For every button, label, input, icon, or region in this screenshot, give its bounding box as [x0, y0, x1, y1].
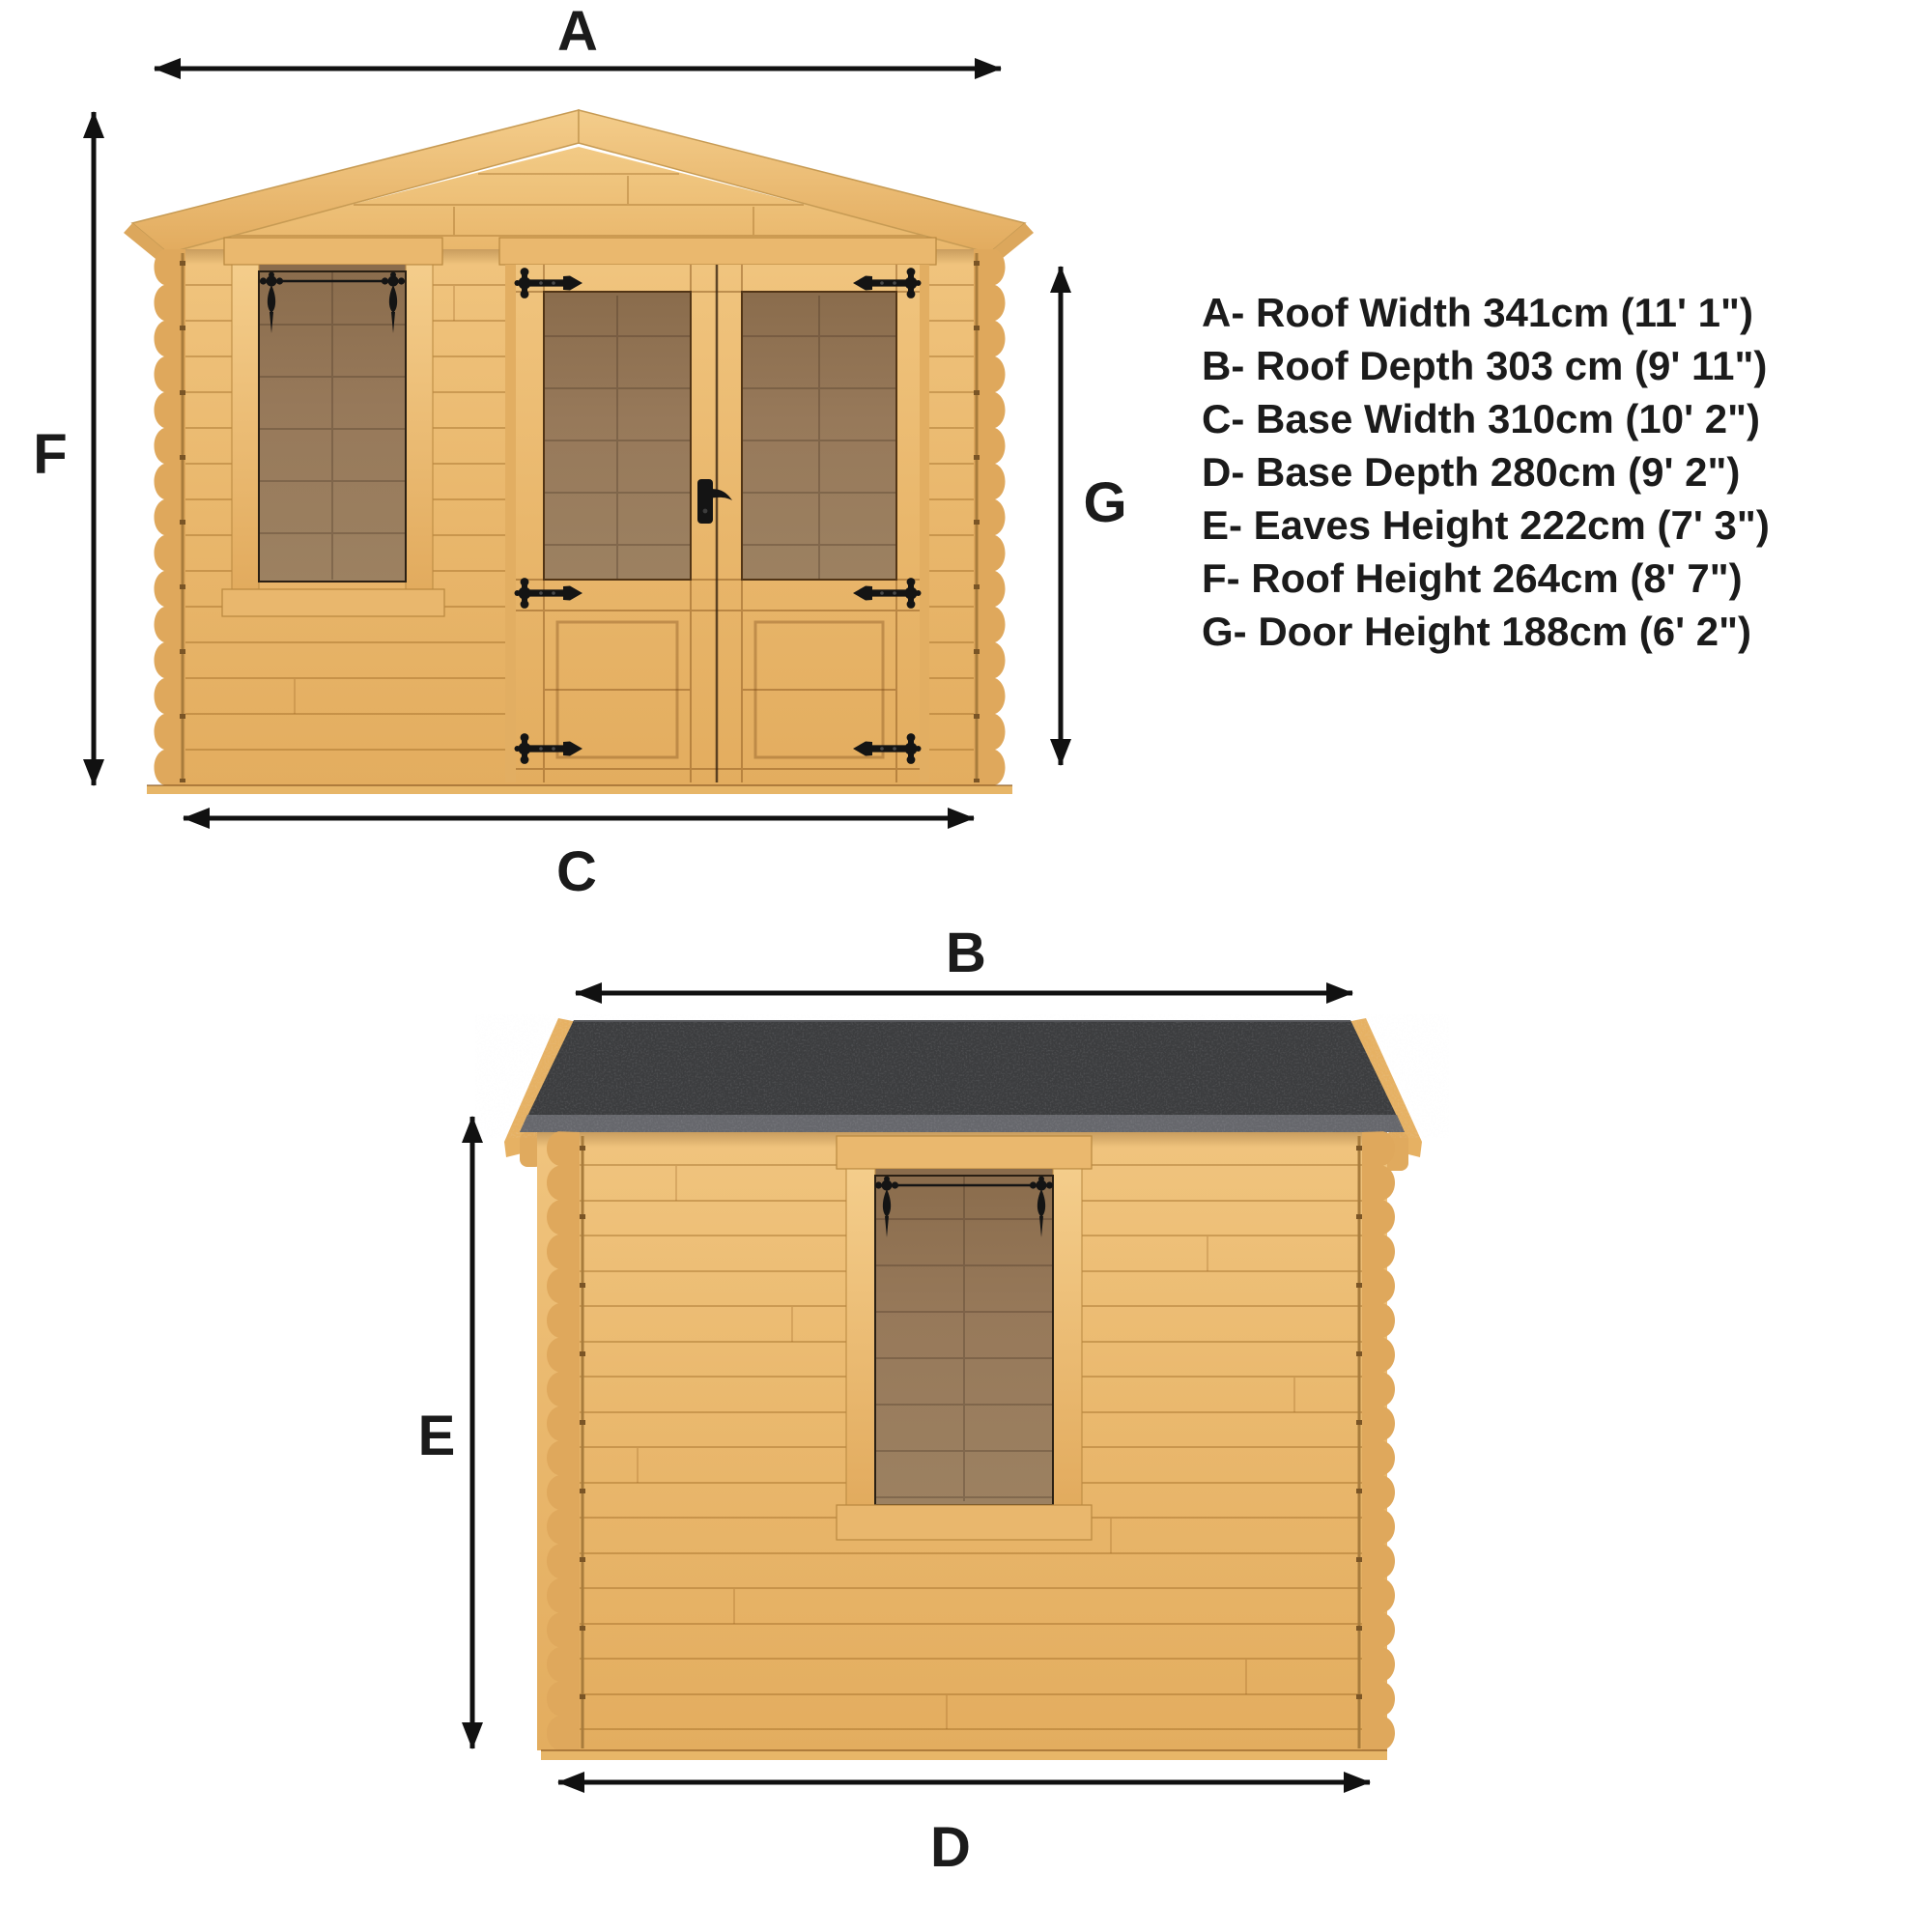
- side-window-stile-left: [846, 1169, 875, 1505]
- front-window-stile-left: [232, 265, 259, 589]
- legend-line-d: D- Base Depth 280cm (9' 2"): [1202, 449, 1740, 495]
- legend-line-e: E- Eaves Height 222cm (7' 3"): [1202, 502, 1770, 548]
- legend-line-a: A- Roof Width 341cm (11' 1"): [1202, 290, 1753, 335]
- front-doors: [499, 238, 936, 782]
- dim-label-e: E: [418, 1405, 456, 1467]
- legend-line-c: C- Base Width 310cm (10' 2"): [1202, 396, 1760, 441]
- dim-arrow-f: F: [33, 112, 94, 785]
- side-base-board: [541, 1750, 1387, 1760]
- side-window-stile-right: [1053, 1169, 1082, 1505]
- dim-label-d: D: [930, 1816, 971, 1879]
- side-corner-log-ends-right: [1362, 1131, 1395, 1750]
- front-window: [222, 238, 444, 616]
- dim-arrow-b: B: [576, 922, 1352, 993]
- side-window-sill: [837, 1505, 1092, 1540]
- dim-arrow-g: G: [1061, 267, 1127, 765]
- dim-label-a: A: [557, 0, 598, 63]
- front-window-sill: [222, 589, 444, 616]
- dim-label-f: F: [33, 423, 67, 486]
- side-roof-felt-texture: [520, 1020, 1405, 1132]
- legend-line-b: B- Roof Depth 303 cm (9' 11"): [1202, 343, 1767, 388]
- diagram-canvas: A F G C: [0, 0, 1932, 1932]
- dim-arrow-d: D: [558, 1782, 1370, 1879]
- cabin-dimension-diagram: A F G C: [0, 0, 1932, 1932]
- dim-arrow-e: E: [418, 1117, 472, 1748]
- dim-arrow-a: A: [155, 0, 1001, 69]
- dim-label-g: G: [1083, 471, 1126, 534]
- dim-arrow-c: C: [184, 818, 974, 903]
- side-elevation: B E D: [418, 922, 1422, 1879]
- front-door-header: [499, 238, 936, 265]
- legend-line-f: F- Roof Height 264cm (8' 7"): [1202, 555, 1743, 601]
- side-window: [837, 1136, 1092, 1540]
- front-base-board: [147, 785, 1012, 794]
- front-elevation: A F G C: [33, 0, 1126, 903]
- dim-label-c: C: [556, 840, 597, 903]
- legend-line-g: G- Door Height 188cm (6' 2"): [1202, 609, 1751, 654]
- front-window-header: [224, 238, 442, 265]
- side-window-header: [837, 1136, 1092, 1169]
- front-window-stile-right: [406, 265, 433, 589]
- dim-label-b: B: [946, 922, 986, 984]
- dimension-legend: A- Roof Width 341cm (11' 1") B- Roof Dep…: [1202, 290, 1770, 654]
